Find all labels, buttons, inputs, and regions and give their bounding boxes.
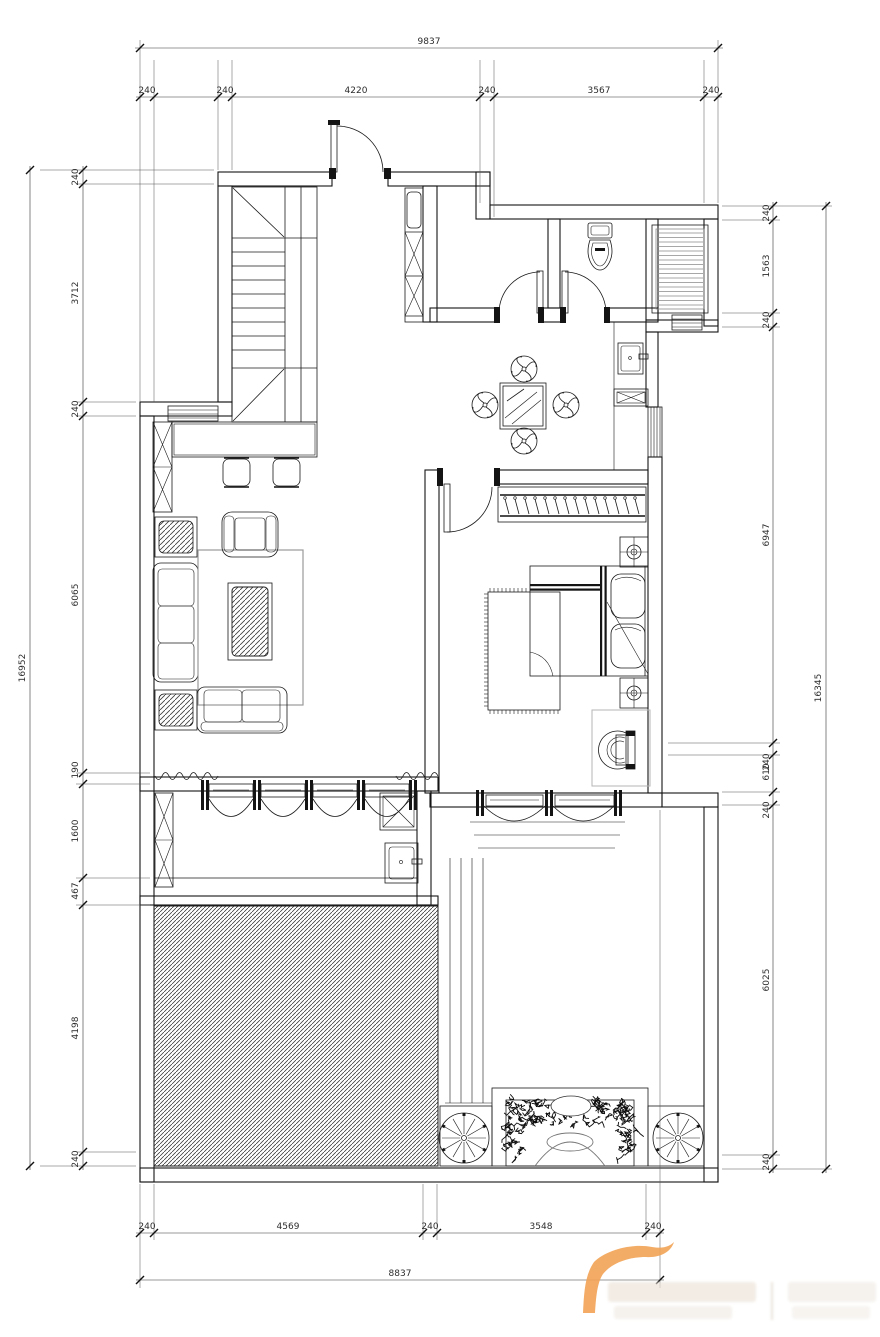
- dim-label: 6025: [762, 969, 772, 992]
- staircase: [232, 187, 317, 422]
- dim-label: 190: [71, 761, 81, 778]
- storage-door: [494, 271, 544, 323]
- dim-label: 6947: [762, 524, 772, 547]
- dim-label: 240: [478, 86, 495, 96]
- balcony-cabinet-x: [155, 793, 173, 887]
- dim-label: 3548: [530, 1222, 553, 1232]
- dim-overall-left: 16952: [18, 654, 28, 683]
- deck-path: [445, 858, 492, 1103]
- dim-label: 240: [216, 86, 233, 96]
- wc-door: [560, 271, 610, 323]
- dim-label: 610: [762, 763, 772, 780]
- dim-overall-top: 9837: [418, 37, 441, 47]
- watermark-text-ghost: [608, 1282, 876, 1320]
- floor-plan-drawing: 240 240 4220 240 3567 240 9837 240 4569 …: [0, 0, 880, 1337]
- curtain-squiggle: [396, 773, 438, 780]
- dim-overall-right: 16345: [814, 674, 824, 703]
- shoe-cabinet: [405, 188, 423, 322]
- dining-stool: [553, 392, 579, 418]
- wash-appliance: [618, 343, 648, 374]
- dim-label: 4220: [345, 86, 368, 96]
- bath-toilet: [592, 710, 650, 786]
- bedroom-folding-windows: [476, 790, 622, 821]
- tree-icon: [653, 1113, 703, 1163]
- watermark-swoosh-icon: [583, 1242, 674, 1313]
- end-table: [155, 690, 197, 730]
- watermark-logo: [583, 1242, 876, 1320]
- dim-label: 3712: [71, 282, 81, 305]
- nightstand-lamp: [620, 537, 648, 567]
- dining-stool: [511, 356, 537, 382]
- dim-overall-bottom: 8837: [389, 1269, 412, 1279]
- dim-label: 1600: [71, 819, 81, 842]
- curtain-squiggle: [155, 773, 218, 780]
- dim-label: 240: [762, 1153, 772, 1170]
- tree-icon: [439, 1113, 489, 1163]
- dim-label: 240: [762, 204, 772, 221]
- dim-label: 240: [138, 86, 155, 96]
- dim-label: 4198: [71, 1016, 81, 1039]
- entry-door: [328, 120, 391, 179]
- dim-label: 240: [71, 400, 81, 417]
- end-table: [155, 517, 197, 557]
- dining-stool: [511, 428, 537, 454]
- dining-table: [500, 383, 546, 429]
- dim-label: 240: [421, 1222, 438, 1232]
- courtyard-planter: [440, 1088, 704, 1166]
- louver-shaft: [652, 225, 708, 330]
- dim-label: 6065: [71, 584, 81, 607]
- double-bed: [530, 566, 648, 676]
- dim-label: 240: [702, 86, 719, 96]
- wc-toilet-icon: [588, 223, 612, 270]
- dim-label: 240: [762, 311, 772, 328]
- sofa-3seat: [153, 563, 198, 682]
- stair-ledge: [168, 406, 218, 421]
- coffee-table: [228, 583, 272, 660]
- duct-shaft: [648, 407, 662, 457]
- nightstand-lamp: [620, 678, 648, 708]
- dining-stool: [472, 392, 498, 418]
- dim-label: 4569: [277, 1222, 300, 1232]
- dim-label: 240: [644, 1222, 661, 1232]
- bookshelf-x: [153, 422, 172, 512]
- living-folding-doors: [155, 773, 438, 817]
- dim-label: 467: [71, 882, 81, 899]
- washer-cabinet-x: [380, 793, 417, 830]
- dim-label: 240: [762, 801, 772, 818]
- terrace-hatched-floor: [154, 906, 438, 1166]
- tv-stool: [223, 458, 250, 487]
- dim-label: 3567: [588, 86, 611, 96]
- bedroom-door: [437, 468, 500, 532]
- bed-rug: [484, 588, 560, 714]
- wardrobe-hanging: [498, 487, 646, 522]
- loveseat: [197, 687, 287, 733]
- floor-plan-page: 240 240 4220 240 3567 240 9837 240 4569 …: [0, 0, 880, 1337]
- tv-stool: [273, 458, 300, 487]
- dim-label: 240: [71, 168, 81, 185]
- dim-label: 240: [138, 1222, 155, 1232]
- terrace-steps: [470, 822, 625, 848]
- dim-label: 1563: [762, 255, 772, 278]
- dim-label: 240: [71, 1150, 81, 1167]
- cabinet-x: [614, 389, 648, 406]
- tv-cabinet: [172, 422, 317, 457]
